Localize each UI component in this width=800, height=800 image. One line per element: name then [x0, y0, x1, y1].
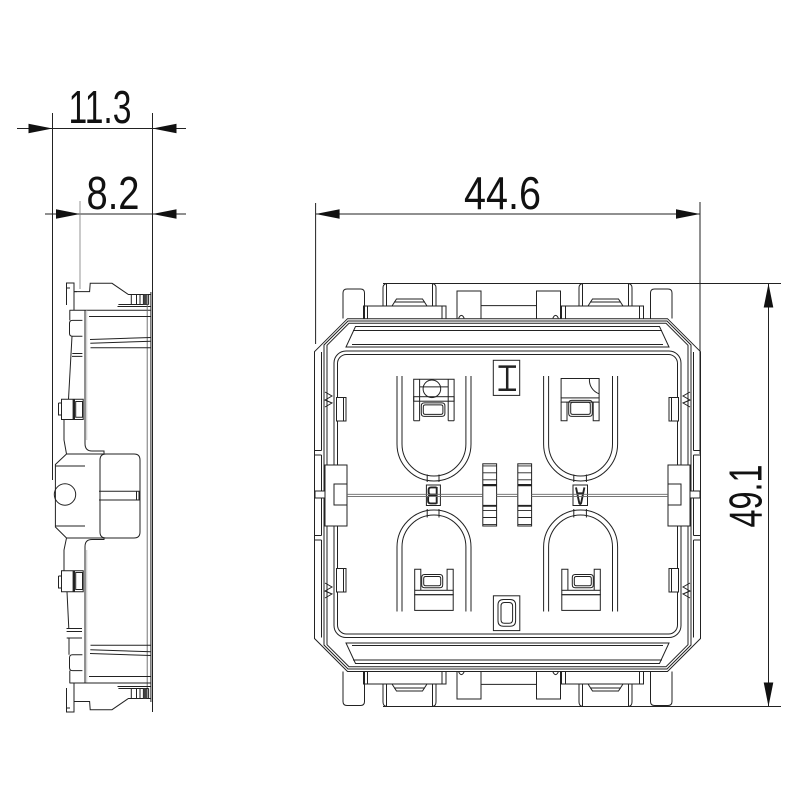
svg-text:44.6: 44.6 [464, 167, 541, 219]
svg-text:8.2: 8.2 [87, 167, 140, 219]
svg-text:11.3: 11.3 [69, 81, 132, 133]
svg-text:49.1: 49.1 [720, 465, 772, 528]
